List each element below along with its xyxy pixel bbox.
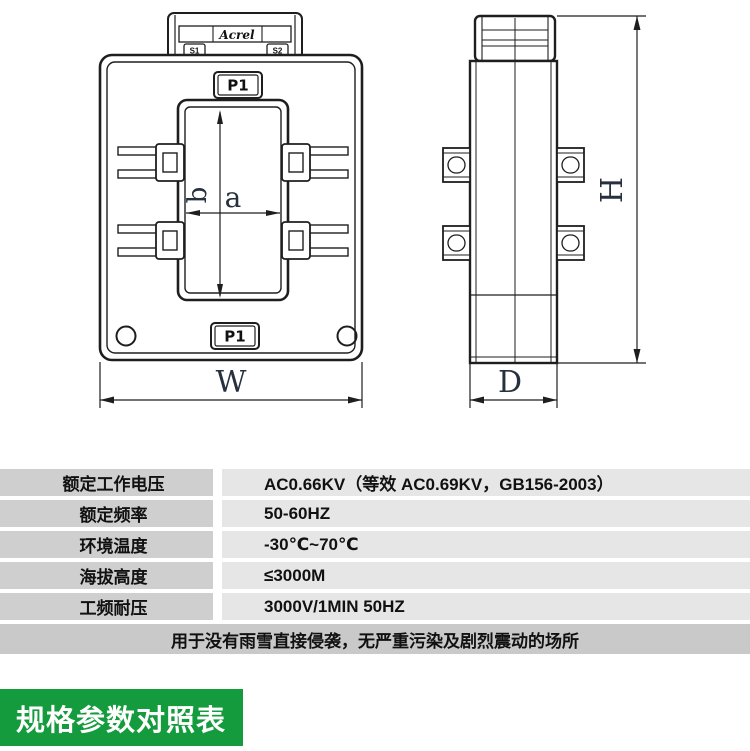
table-row: 额定频率 50-60HZ [0,500,750,527]
spec-value: -30℃~70℃ [222,531,750,558]
p1-marking-bottom: P1 [211,323,259,349]
spec-table: 额定工作电压 AC0.66KV（等效 AC0.69KV，GB156-2003） … [0,469,750,654]
svg-text:a: a [225,181,242,214]
side-view: H D [443,16,646,408]
svg-text:W: W [216,365,247,400]
svg-text:b: b [183,187,213,204]
table-row: 工频耐压 3000V/1MIN 50HZ [0,593,750,620]
svg-text:D: D [498,365,522,400]
spec-value: AC0.66KV（等效 AC0.69KV，GB156-2003） [222,469,750,496]
table-row: 海拔高度 ≤3000M [0,562,750,589]
p1-marking-top: P1 [214,72,262,98]
spec-label: 工频耐压 [0,593,213,620]
page: Acrel S1 S2 [0,0,750,751]
side-cap [475,16,555,61]
spec-label: 额定频率 [0,500,213,527]
spec-label: 海拔高度 [0,562,213,589]
svg-text:P1: P1 [224,328,245,346]
table-row: 额定工作电压 AC0.66KV（等效 AC0.69KV，GB156-2003） [0,469,750,496]
section-title: 规格参数对照表 [0,689,243,746]
side-tab-lower-right [557,226,584,260]
dimension-h: H [557,16,646,363]
side-tab-lower-left [443,226,470,260]
spec-value: 3000V/1MIN 50HZ [222,593,750,620]
spec-value: 50-60HZ [222,500,750,527]
spec-label: 额定工作电压 [0,469,213,496]
table-row: 环境温度 -30℃~70℃ [0,531,750,558]
side-tab-upper-left [443,148,470,182]
side-body-outer [470,61,557,363]
usage-note: 用于没有雨雪直接侵袭，无严重污染及剧烈震动的场所 [0,624,750,654]
front-view: Acrel S1 S2 [100,13,362,408]
brand-logo: Acrel [218,28,255,42]
side-tab-upper-right [557,148,584,182]
dimension-w: W [100,362,362,408]
svg-text:H: H [595,177,630,203]
spec-label: 环境温度 [0,531,213,558]
dimension-drawing: Acrel S1 S2 [0,0,750,460]
terminal-cover: Acrel S1 S2 [168,13,302,59]
dimension-d: D [470,363,557,408]
svg-text:P1: P1 [227,77,248,95]
spec-value: ≤3000M [222,562,750,589]
